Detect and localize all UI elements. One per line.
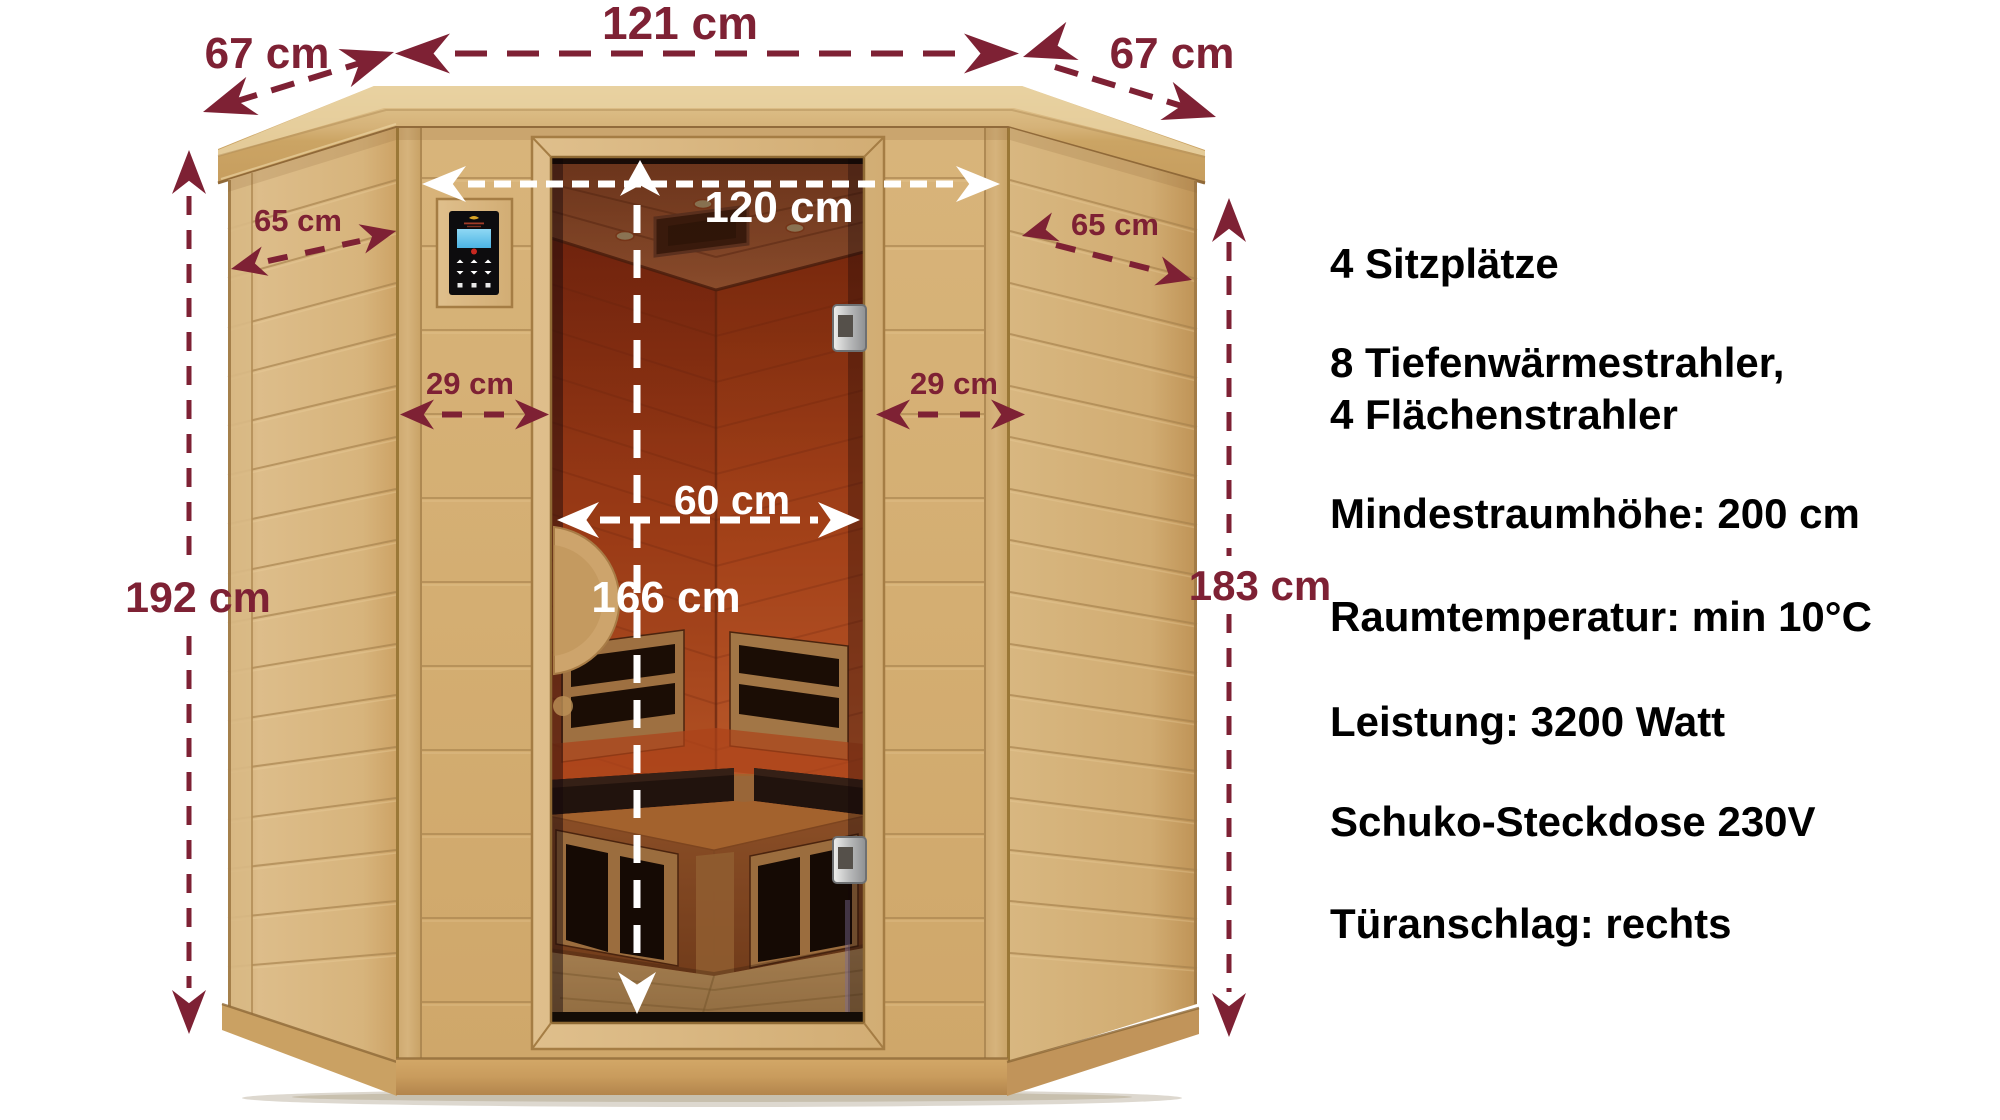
svg-text:120 cm: 120 cm	[704, 183, 853, 232]
svg-text:8 Tiefenwärmestrahler,: 8 Tiefenwärmestrahler,	[1330, 339, 1784, 386]
svg-text:Mindestraumhöhe: 200 cm: Mindestraumhöhe: 200 cm	[1330, 490, 1860, 537]
svg-text:121 cm: 121 cm	[602, 0, 758, 49]
svg-text:Schuko-Steckdose 230V: Schuko-Steckdose 230V	[1330, 798, 1816, 845]
svg-text:4 Sitzplätze: 4 Sitzplätze	[1330, 240, 1559, 287]
svg-text:166 cm: 166 cm	[591, 573, 740, 622]
svg-text:60 cm: 60 cm	[674, 477, 790, 523]
svg-text:192 cm: 192 cm	[125, 574, 271, 622]
svg-text:29 cm: 29 cm	[910, 366, 998, 401]
svg-text:29 cm: 29 cm	[426, 366, 514, 401]
svg-text:Leistung: 3200 Watt: Leistung: 3200 Watt	[1330, 698, 1725, 745]
svg-text:Raumtemperatur: min 10°C: Raumtemperatur: min 10°C	[1330, 593, 1872, 640]
svg-text:65 cm: 65 cm	[254, 203, 342, 238]
svg-text:67 cm: 67 cm	[205, 29, 330, 78]
svg-text:183 cm: 183 cm	[1189, 562, 1331, 609]
svg-text:67 cm: 67 cm	[1110, 29, 1235, 78]
svg-text:Türanschlag: rechts: Türanschlag: rechts	[1330, 900, 1731, 947]
svg-text:4 Flächenstrahler: 4 Flächenstrahler	[1330, 391, 1678, 438]
svg-text:65 cm: 65 cm	[1071, 207, 1159, 242]
